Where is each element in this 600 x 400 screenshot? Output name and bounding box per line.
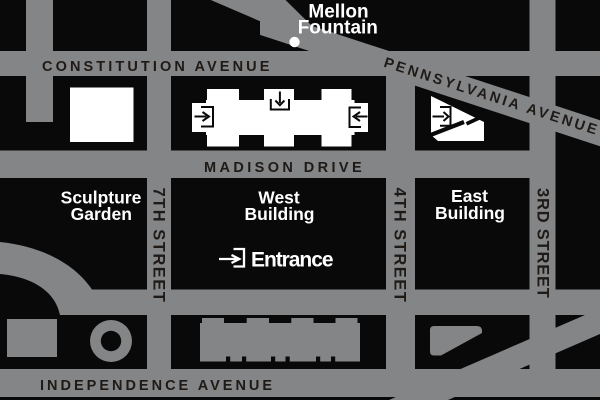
svg-text:Entrance: Entrance	[251, 248, 333, 271]
svg-text:4TH STREET: 4TH STREET	[391, 188, 409, 304]
svg-text:3RD STREET: 3RD STREET	[533, 188, 551, 299]
svg-text:7TH STREET: 7TH STREET	[150, 188, 168, 304]
svg-text:INDEPENDENCE AVENUE: INDEPENDENCE AVENUE	[40, 378, 275, 394]
svg-text:Building: Building	[435, 203, 505, 223]
svg-text:Building: Building	[245, 204, 315, 224]
svg-text:Garden: Garden	[71, 204, 132, 224]
svg-text:Fountain: Fountain	[298, 18, 378, 39]
svg-text:CONSTITUTION AVENUE: CONSTITUTION AVENUE	[42, 59, 273, 75]
svg-text:MADISON DRIVE: MADISON DRIVE	[204, 160, 365, 176]
